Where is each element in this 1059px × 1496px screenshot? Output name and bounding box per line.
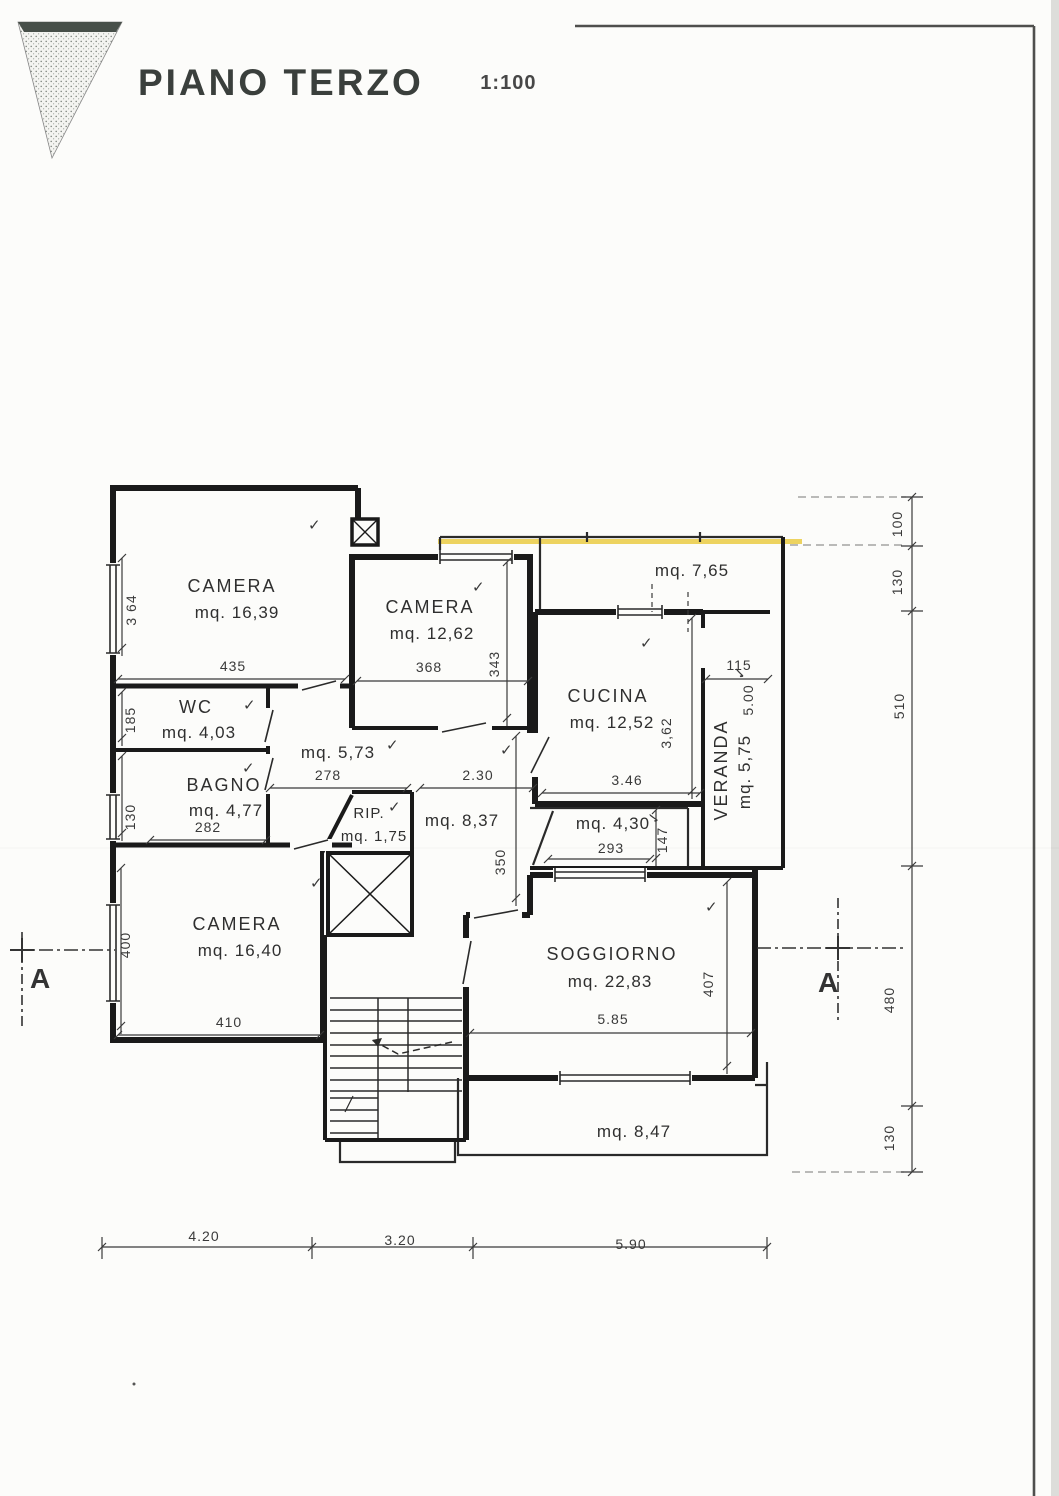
check-icon: ✓: [386, 737, 399, 754]
dim-420: 4.20: [188, 1228, 219, 1244]
dim-368: 368: [416, 659, 442, 675]
section-label-left: A: [30, 963, 50, 994]
dim-362: 3,62: [658, 717, 674, 748]
room-area-camera-1639: mq. 16,39: [195, 603, 280, 622]
dim-right-100: 100: [889, 511, 905, 537]
dim-435: 435: [220, 658, 246, 674]
dim-right-130-top: 130: [889, 569, 905, 595]
room-area-bagno: mq. 4,77: [189, 801, 263, 820]
room-label-veranda: VERANDA: [711, 719, 731, 820]
dim-278: 278: [315, 767, 341, 783]
check-icon: ✓: [705, 899, 718, 916]
staircase: [330, 998, 462, 1138]
dim-590: 5.90: [615, 1236, 646, 1252]
dim-346: 3.46: [611, 772, 642, 788]
dim-293: 293: [598, 840, 624, 856]
check-icon: ✓: [388, 799, 401, 816]
room-label-soggiorno: SOGGIORNO: [546, 944, 677, 964]
room-label-camera-1640: CAMERA: [192, 914, 281, 934]
section-label-right: A: [818, 967, 838, 998]
room-label-wc: WC: [179, 697, 213, 717]
check-icon: ✓: [243, 697, 256, 714]
dim-320: 3.20: [384, 1232, 415, 1248]
room-area-balcone-430: mq. 4,30: [576, 814, 650, 833]
dim-right-480: 480: [881, 987, 897, 1013]
room-area-camera-1262: mq. 12,62: [390, 624, 475, 643]
room-area-soggiorno: mq. 22,83: [568, 972, 653, 991]
room-area-terrazzo-765: mq. 7,65: [655, 561, 729, 580]
dim-right-130-bottom: 130: [881, 1125, 897, 1151]
check-icon: ✓: [310, 875, 323, 892]
room-area-wc: mq. 4,03: [162, 723, 236, 742]
check-icon: ✓: [472, 579, 485, 596]
dim-230: 2.30: [462, 767, 493, 783]
check-icon: ✓: [646, 811, 663, 824]
check-icon: ✓: [500, 742, 513, 759]
room-area-ingresso: mq. 8,37: [425, 811, 499, 830]
sheet: PIANO TERZO 1:100: [0, 0, 1059, 1496]
dim-147: 147: [654, 827, 670, 853]
room-label-camera-1639: CAMERA: [187, 576, 276, 596]
corner-triangle: [18, 22, 122, 158]
dim-400: 400: [117, 932, 133, 958]
room-area-rip: mq. 1,75: [341, 828, 407, 845]
floor-plan: A A CAMERA mq. 16,39 CAMERA mq. 12,62 CU…: [0, 0, 1059, 1496]
room-label-cucina: CUCINA: [567, 686, 648, 706]
dim-500: 5.00: [740, 684, 756, 715]
dim-407: 407: [700, 971, 716, 997]
room-area-cucina: mq. 12,52: [570, 713, 655, 732]
dim-185: 185: [122, 707, 138, 733]
room-label-camera-1262: CAMERA: [385, 597, 474, 617]
room-area-camera-1640: mq. 16,40: [198, 941, 283, 960]
dim-364: 3 64: [123, 594, 139, 625]
dim-right-510: 510: [891, 693, 907, 719]
dim-130-left: 130: [122, 804, 138, 830]
dim-585: 5.85: [597, 1011, 628, 1027]
dim-343: 343: [486, 651, 502, 677]
room-area-veranda: mq. 5,75: [735, 735, 754, 809]
room-label-rip: RIP.: [353, 805, 384, 822]
dim-410: 410: [216, 1014, 242, 1030]
highlight-line: [438, 539, 802, 544]
room-area-balcone-847: mq. 8,47: [597, 1122, 671, 1141]
room-label-bagno: BAGNO: [186, 775, 261, 795]
dim-350: 350: [492, 849, 508, 875]
section-line: [10, 898, 905, 1028]
check-icon: ✓: [640, 635, 653, 652]
check-icon: ✓: [308, 517, 321, 534]
dim-282: 282: [195, 819, 221, 835]
check-icon: ✓: [242, 760, 255, 777]
room-area-corridoio: mq. 5,73: [301, 743, 375, 762]
